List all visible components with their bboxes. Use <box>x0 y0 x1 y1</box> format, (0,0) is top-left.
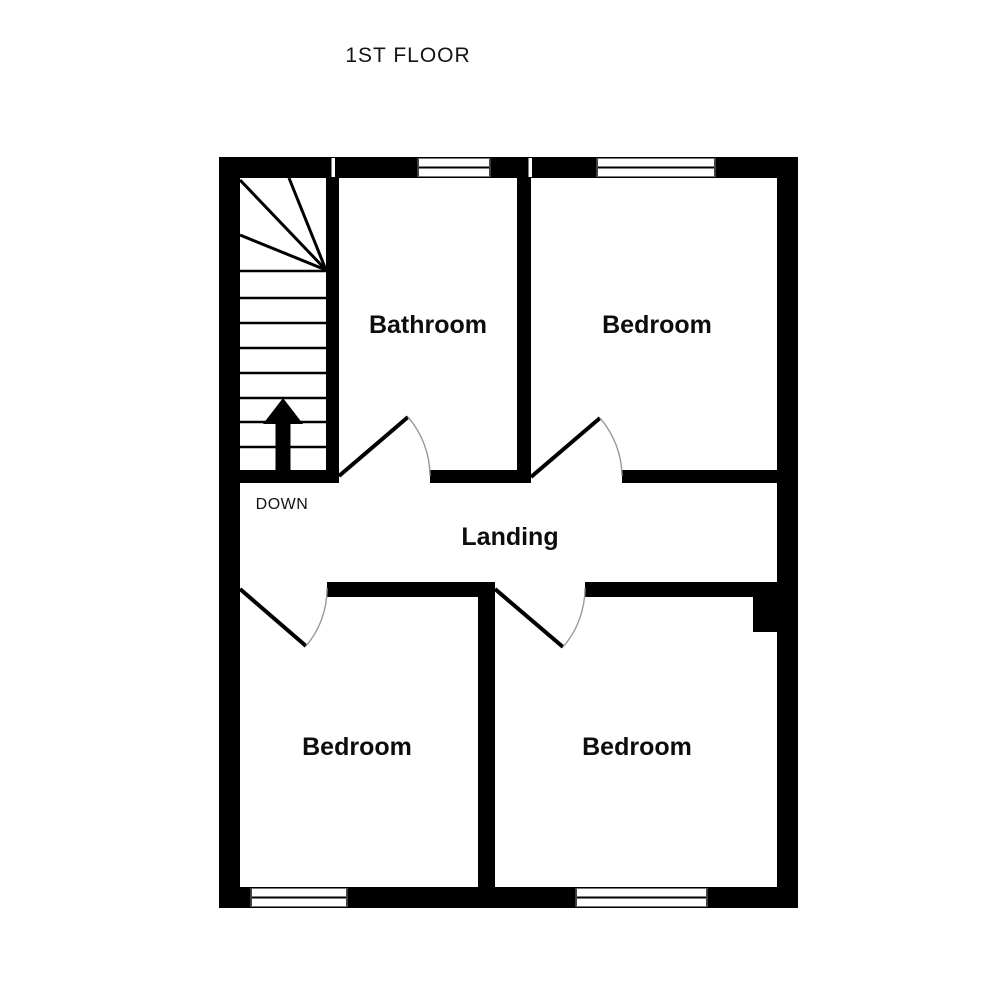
wall-landing-top-middle <box>430 470 531 483</box>
winder-tread-line <box>240 180 326 270</box>
room-label-bedroom-bottom-left: Bedroom <box>302 733 412 761</box>
floor-plan-page: 1ST FLOOR <box>0 0 992 992</box>
wall-joint-seam <box>332 158 336 177</box>
outer-wall-left <box>219 157 240 908</box>
wall-joint-seam <box>529 158 533 177</box>
room-label-bathroom: Bathroom <box>369 311 487 339</box>
door-bedroom-bottom-right <box>495 588 585 647</box>
wall-bathroom-bedroom <box>517 178 531 483</box>
page-title: 1ST FLOOR <box>345 44 470 67</box>
doors <box>240 417 622 647</box>
staircase <box>240 178 326 479</box>
wall-landing-top-right <box>622 470 777 483</box>
wall-landing-bottom-left <box>327 582 495 597</box>
door-bedroom-top-right <box>531 418 622 477</box>
up-arrow-icon <box>263 398 303 479</box>
stairs-down-label: DOWN <box>256 496 309 513</box>
wall-notch <box>753 595 777 632</box>
door-bedroom-bottom-left <box>240 588 327 646</box>
window-bedroom-bottom-left <box>251 889 347 907</box>
window-bedroom-bottom-right <box>576 889 707 907</box>
wall-landing-bottom-right <box>585 582 777 597</box>
room-label-bedroom-bottom-right: Bedroom <box>582 733 692 761</box>
door-bathroom <box>339 417 430 476</box>
floor-plan-drawing: 1ST FLOOR <box>0 0 992 992</box>
wall-stair-bathroom <box>326 178 339 483</box>
room-label-landing: Landing <box>461 523 558 551</box>
window-bathroom <box>418 159 490 177</box>
window-bedroom-top-right <box>597 159 715 177</box>
wall-bedroom-divider <box>478 582 495 887</box>
outer-wall-right <box>777 157 798 908</box>
room-label-bedroom-top-right: Bedroom <box>602 311 712 339</box>
